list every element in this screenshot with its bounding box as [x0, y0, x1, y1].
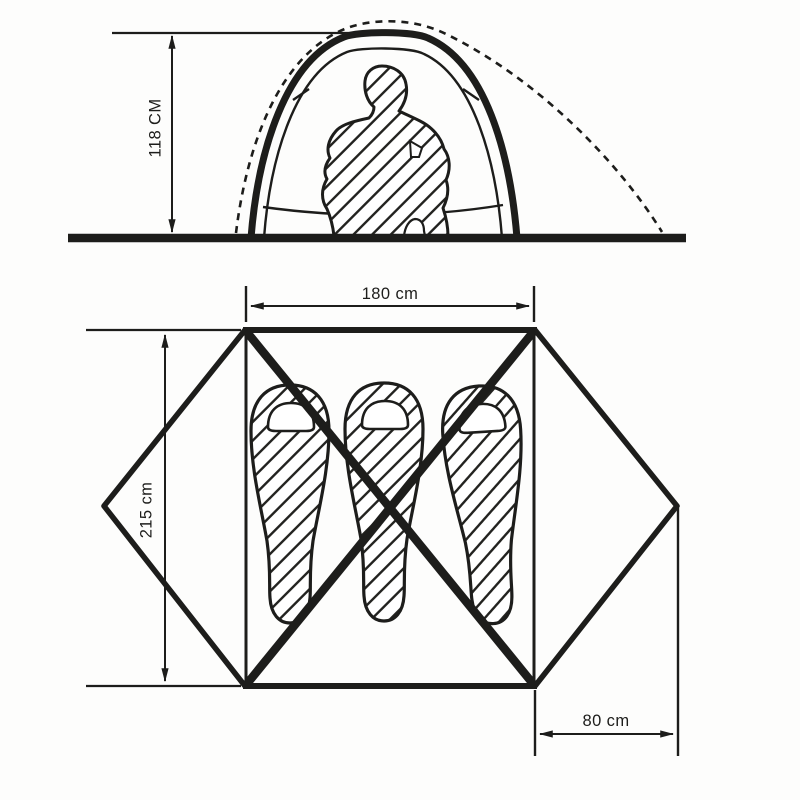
width-dimension: 180 cm — [246, 285, 534, 322]
side-elevation-view: 118 CM — [68, 21, 686, 238]
right-vestibule-outline — [535, 330, 677, 686]
vestibule-dimension: 80 cm — [535, 508, 678, 756]
left-vestibule-outline — [104, 330, 245, 686]
vestibule-dimension-label: 80 cm — [583, 712, 630, 730]
height-dimension-label: 118 CM — [146, 99, 164, 158]
camper-silhouette — [323, 66, 450, 236]
depth-dimension-label: 215 cm — [137, 482, 155, 539]
width-dimension-label: 180 cm — [362, 285, 419, 303]
diagram-canvas: 118 CM 180 cm — [0, 0, 800, 800]
depth-dimension: 215 cm — [86, 330, 241, 686]
tent-dimensions-diagram: 118 CM 180 cm — [0, 0, 800, 800]
floor-plan-view: 180 cm 215 cm 80 cm — [86, 285, 678, 756]
